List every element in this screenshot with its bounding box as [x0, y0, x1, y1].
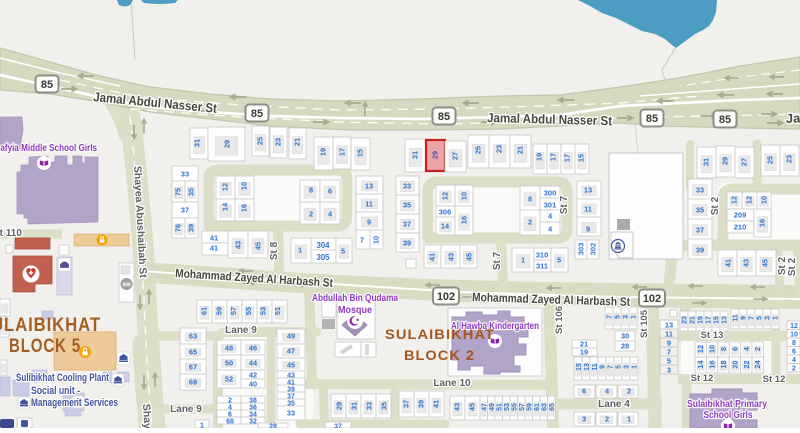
svg-text:2: 2 — [627, 387, 631, 396]
svg-text:28: 28 — [269, 424, 277, 429]
svg-text:28: 28 — [621, 342, 629, 351]
svg-text:300: 300 — [544, 189, 557, 198]
svg-text:SULAIBIKHAT: SULAIBIKHAT — [385, 326, 495, 342]
svg-text:5: 5 — [616, 365, 623, 369]
svg-text:63: 63 — [189, 332, 197, 341]
svg-text:35: 35 — [187, 188, 196, 196]
svg-text:10: 10 — [790, 332, 798, 339]
svg-text:5: 5 — [667, 357, 671, 366]
svg-text:School Girls: School Girls — [704, 409, 753, 421]
svg-text:33: 33 — [403, 182, 411, 191]
svg-text:17: 17 — [549, 153, 558, 161]
svg-text:24: 24 — [753, 360, 762, 369]
svg-text:47: 47 — [287, 347, 295, 356]
svg-text:12: 12 — [221, 183, 230, 191]
svg-text:13: 13 — [365, 182, 373, 191]
svg-text:9: 9 — [586, 225, 590, 234]
svg-text:5: 5 — [615, 315, 622, 319]
svg-text:St 12: St 12 — [763, 374, 786, 385]
svg-text:23: 23 — [682, 316, 689, 324]
svg-text:45: 45 — [465, 253, 474, 261]
svg-text:37: 37 — [403, 220, 411, 229]
svg-text:31: 31 — [193, 139, 202, 147]
svg-text:57: 57 — [229, 307, 238, 315]
svg-text:3: 3 — [667, 366, 671, 375]
svg-text:85: 85 — [438, 111, 450, 123]
svg-text:St 106: St 106 — [554, 306, 565, 334]
svg-text:41: 41 — [210, 244, 218, 253]
svg-text:102: 102 — [643, 293, 661, 305]
svg-text:35: 35 — [403, 201, 411, 210]
svg-text:2: 2 — [753, 347, 762, 351]
svg-text:Lane 9: Lane 9 — [170, 404, 202, 415]
svg-text:St 7: St 7 — [559, 195, 570, 214]
svg-text:St 2: St 2 — [787, 257, 798, 276]
svg-text:3: 3 — [765, 316, 772, 320]
svg-text:85: 85 — [251, 108, 263, 120]
svg-text:14: 14 — [221, 202, 230, 211]
svg-text:69: 69 — [189, 378, 197, 387]
svg-text:21: 21 — [516, 146, 525, 154]
svg-text:67: 67 — [189, 363, 197, 372]
svg-text:27: 27 — [451, 152, 460, 160]
svg-text:6: 6 — [328, 187, 332, 196]
svg-text:11: 11 — [665, 330, 673, 339]
svg-text:20: 20 — [730, 360, 739, 368]
svg-text:306: 306 — [439, 208, 452, 217]
svg-text:45: 45 — [468, 403, 477, 411]
svg-text:12: 12 — [441, 192, 450, 200]
svg-text:Social unit -: Social unit - — [31, 385, 80, 397]
svg-text:209: 209 — [734, 211, 747, 220]
svg-text:7: 7 — [607, 315, 614, 319]
svg-text:61: 61 — [200, 307, 209, 315]
svg-text:302: 302 — [589, 243, 598, 256]
svg-text:43: 43 — [742, 259, 751, 267]
svg-text:1: 1 — [200, 421, 204, 428]
svg-text:2: 2 — [792, 366, 796, 373]
svg-text:305: 305 — [316, 253, 330, 262]
svg-text:39: 39 — [696, 246, 704, 255]
svg-text:19: 19 — [580, 348, 588, 357]
svg-text:1: 1 — [773, 316, 780, 320]
svg-text:9: 9 — [367, 218, 371, 227]
svg-text:6: 6 — [582, 387, 586, 396]
svg-text:9: 9 — [667, 339, 671, 348]
svg-text:13: 13 — [665, 321, 673, 330]
svg-text:43: 43 — [447, 253, 456, 261]
svg-text:52: 52 — [225, 375, 233, 384]
svg-text:1: 1 — [298, 246, 302, 255]
svg-text:301: 301 — [544, 201, 557, 210]
svg-text:St 8: St 8 — [269, 241, 280, 260]
svg-text:55: 55 — [244, 307, 253, 315]
svg-text:29: 29 — [721, 157, 730, 165]
svg-text:10: 10 — [708, 345, 717, 353]
svg-text:85: 85 — [41, 79, 53, 91]
svg-text:Management Services: Management Services — [31, 397, 118, 409]
svg-text:10: 10 — [460, 192, 469, 200]
svg-text:75: 75 — [174, 188, 183, 196]
svg-text:65: 65 — [189, 348, 197, 357]
svg-text:33: 33 — [287, 409, 295, 418]
svg-text:49: 49 — [287, 332, 295, 341]
svg-text:102: 102 — [437, 291, 455, 303]
svg-text:23: 23 — [495, 145, 504, 153]
svg-text:7: 7 — [608, 365, 615, 369]
svg-text:46: 46 — [249, 344, 257, 353]
svg-text:5: 5 — [757, 316, 764, 320]
svg-text:31: 31 — [411, 151, 420, 159]
svg-text:St 105: St 105 — [639, 309, 650, 338]
svg-text:13: 13 — [722, 316, 729, 324]
svg-text:7: 7 — [667, 348, 671, 357]
svg-text:53: 53 — [259, 307, 268, 315]
svg-text:48: 48 — [225, 344, 233, 353]
svg-text:23: 23 — [274, 138, 283, 146]
svg-text:10: 10 — [372, 236, 381, 244]
svg-text:St 7: St 7 — [492, 251, 503, 270]
svg-text:304: 304 — [316, 241, 330, 250]
svg-text:76: 76 — [174, 224, 183, 232]
svg-text:12: 12 — [730, 196, 739, 204]
svg-text:35: 35 — [380, 402, 389, 410]
svg-text:31: 31 — [350, 402, 359, 410]
svg-text:35: 35 — [696, 206, 704, 215]
svg-text:41: 41 — [210, 234, 218, 243]
svg-text:15: 15 — [577, 154, 586, 162]
svg-text:44: 44 — [249, 359, 258, 368]
svg-text:45: 45 — [287, 361, 295, 370]
svg-text:3: 3 — [582, 415, 586, 424]
svg-text:Abdullah Bin Qudama: Abdullah Bin Qudama — [312, 292, 398, 304]
svg-text:33: 33 — [696, 186, 704, 195]
svg-text:Mosque: Mosque — [338, 304, 372, 316]
svg-text:14: 14 — [696, 360, 705, 369]
svg-text:210: 210 — [734, 223, 747, 232]
svg-text:29: 29 — [431, 151, 440, 159]
svg-text:45: 45 — [254, 242, 263, 250]
svg-text:50: 50 — [225, 359, 233, 368]
svg-text:37: 37 — [402, 400, 411, 408]
svg-text:19: 19 — [535, 153, 544, 161]
svg-text:51: 51 — [273, 307, 282, 315]
svg-text:42: 42 — [249, 371, 257, 380]
svg-text:16: 16 — [460, 216, 469, 224]
svg-text:310: 310 — [536, 251, 549, 260]
svg-text:311: 311 — [536, 262, 548, 271]
svg-text:23: 23 — [785, 155, 794, 163]
svg-text:43: 43 — [234, 241, 243, 249]
svg-text:25: 25 — [766, 156, 775, 164]
svg-text:16: 16 — [708, 360, 717, 368]
svg-text:25: 25 — [474, 146, 483, 154]
svg-text:21: 21 — [690, 316, 697, 324]
svg-text:Jamal Abdul: Jamal Abdul — [786, 108, 800, 126]
svg-text:St 13: St 13 — [701, 330, 724, 341]
svg-text:37: 37 — [334, 424, 342, 429]
svg-text:7: 7 — [749, 316, 756, 320]
svg-text:St 12: St 12 — [691, 373, 714, 384]
svg-text:1: 1 — [631, 365, 638, 369]
svg-text:1: 1 — [631, 315, 638, 319]
svg-text:12: 12 — [745, 196, 754, 204]
svg-text:21: 21 — [293, 138, 302, 146]
svg-text:17: 17 — [338, 148, 347, 156]
svg-text:Lane 4: Lane 4 — [598, 399, 630, 410]
svg-text:1: 1 — [627, 415, 631, 424]
svg-text:10: 10 — [760, 196, 769, 204]
svg-text:2: 2 — [528, 218, 532, 227]
svg-text:43: 43 — [453, 403, 462, 411]
svg-text:13: 13 — [584, 186, 592, 195]
svg-text:St 110: St 110 — [0, 228, 22, 239]
svg-text:9: 9 — [741, 316, 748, 320]
svg-text:11: 11 — [365, 200, 373, 209]
svg-text:4: 4 — [792, 357, 796, 364]
svg-text:Lane 9: Lane 9 — [225, 325, 257, 336]
svg-text:5: 5 — [557, 256, 561, 265]
svg-text:32: 32 — [249, 419, 257, 426]
svg-text:Lane 10: Lane 10 — [433, 378, 471, 389]
svg-text:12: 12 — [790, 323, 798, 330]
svg-text:25: 25 — [256, 137, 265, 145]
svg-text:Shafyia Middle School Girls: Shafyia Middle School Girls — [0, 143, 97, 154]
svg-text:19: 19 — [319, 148, 328, 156]
svg-text:16: 16 — [758, 219, 767, 227]
svg-text:8: 8 — [528, 195, 532, 204]
svg-text:45: 45 — [761, 259, 770, 267]
svg-text:Shayea Ab: Shayea Ab — [140, 404, 155, 428]
svg-text:30: 30 — [621, 332, 629, 341]
svg-text:17: 17 — [563, 154, 572, 162]
svg-text:BLOCK 5: BLOCK 5 — [9, 336, 81, 357]
svg-text:11: 11 — [733, 314, 740, 321]
svg-text:27: 27 — [740, 158, 749, 166]
svg-text:18: 18 — [719, 360, 728, 368]
svg-text:29: 29 — [223, 140, 232, 148]
svg-text:3: 3 — [623, 365, 630, 369]
svg-text:SULAIBIKHAT: SULAIBIKHAT — [0, 315, 101, 336]
svg-text:5: 5 — [341, 247, 345, 256]
svg-text:85: 85 — [719, 114, 731, 126]
svg-text:11: 11 — [584, 205, 592, 214]
svg-text:6: 6 — [730, 347, 739, 351]
svg-text:85: 85 — [646, 113, 658, 125]
svg-text:3: 3 — [623, 315, 630, 319]
svg-text:37: 37 — [181, 206, 189, 215]
svg-text:68: 68 — [226, 419, 234, 426]
svg-text:33: 33 — [181, 170, 189, 179]
svg-text:1: 1 — [521, 256, 525, 265]
svg-text:37: 37 — [696, 226, 704, 235]
svg-text:7: 7 — [360, 236, 364, 245]
svg-text:39: 39 — [417, 400, 426, 408]
svg-text:17: 17 — [706, 316, 713, 324]
svg-text:St 2: St 2 — [710, 196, 721, 215]
svg-text:8: 8 — [309, 186, 313, 195]
svg-text:39: 39 — [187, 224, 196, 232]
svg-text:Sulibikhat Cooling Plant: Sulibikhat Cooling Plant — [16, 372, 109, 384]
svg-text:6: 6 — [792, 349, 796, 356]
svg-text:31: 31 — [702, 158, 711, 166]
svg-text:999: 999 — [122, 283, 131, 289]
svg-text:29: 29 — [335, 402, 344, 410]
svg-text:33: 33 — [365, 402, 374, 410]
svg-text:41: 41 — [428, 253, 437, 261]
svg-text:12: 12 — [696, 345, 705, 353]
svg-text:22: 22 — [742, 360, 751, 368]
svg-text:65: 65 — [549, 403, 556, 411]
svg-text:40: 40 — [249, 380, 257, 389]
svg-text:59: 59 — [214, 307, 223, 315]
svg-text:39: 39 — [403, 239, 411, 248]
svg-text:16: 16 — [240, 204, 249, 212]
svg-text:14: 14 — [441, 222, 450, 231]
svg-text:8: 8 — [719, 347, 728, 351]
svg-text:8: 8 — [792, 340, 796, 347]
svg-text:2: 2 — [309, 210, 313, 219]
svg-text:BLOCK 2: BLOCK 2 — [404, 347, 475, 363]
svg-text:41: 41 — [432, 400, 441, 408]
svg-text:19: 19 — [698, 316, 705, 324]
svg-text:15: 15 — [714, 316, 721, 324]
svg-text:15: 15 — [356, 149, 365, 157]
svg-text:41: 41 — [724, 259, 733, 267]
svg-text:303: 303 — [577, 243, 586, 256]
svg-text:10: 10 — [240, 182, 249, 190]
svg-text:2: 2 — [605, 415, 609, 424]
